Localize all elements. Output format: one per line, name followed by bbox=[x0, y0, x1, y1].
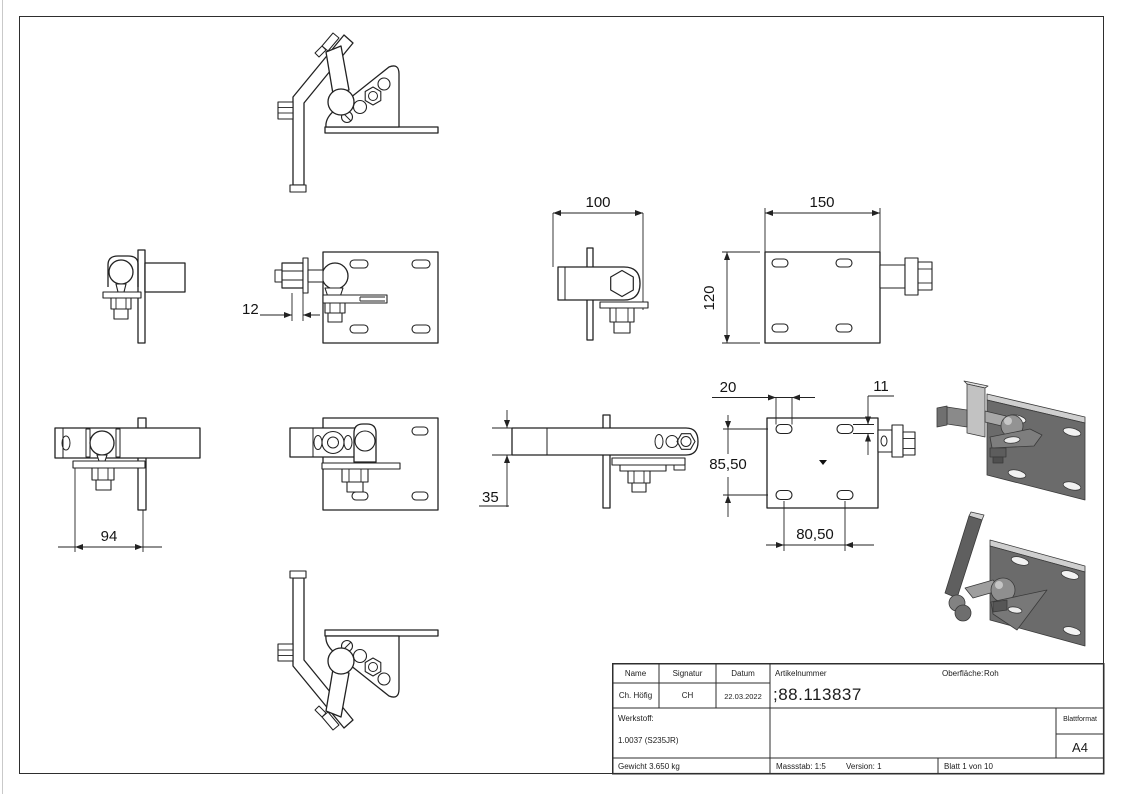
titleblock-material-value: 1.0037 (S235JR) bbox=[618, 736, 678, 745]
view-side-94: 94 bbox=[40, 400, 220, 560]
dim-hole-spacing-vertical: 85,50 bbox=[709, 456, 747, 473]
titleblock-weight: Gewicht 3.650 kg bbox=[618, 762, 680, 771]
view-front-lower bbox=[280, 400, 475, 515]
titleblock-signature-value: CH bbox=[659, 691, 716, 700]
dim-arm-height: 35 bbox=[482, 489, 499, 506]
titleblock-name-value: Ch. Höfig bbox=[612, 691, 659, 700]
titleblock-version: Version: 1 bbox=[846, 762, 882, 771]
view-front-upper: 12 bbox=[240, 235, 445, 350]
dim-plate-offset: 12 bbox=[242, 301, 259, 318]
titleblock-date-label: Datum bbox=[716, 669, 770, 678]
titleblock-format-label: Blattformat bbox=[1056, 716, 1104, 723]
titleblock-surface-label: Oberfläche: bbox=[942, 669, 983, 678]
page-edge bbox=[2, 0, 3, 794]
titleblock-name-label: Name bbox=[612, 669, 659, 678]
dim-top-view-length: 100 bbox=[585, 194, 610, 211]
dim-slot-length: 20 bbox=[720, 379, 737, 396]
dim-plate-width: 150 bbox=[809, 194, 834, 211]
titleblock-article-label: Artikelnummer bbox=[775, 669, 827, 678]
titleblock-signature-label: Signatur bbox=[659, 669, 716, 678]
view-side-35: 35 bbox=[478, 390, 703, 530]
dim-slot-width: 11 bbox=[873, 378, 889, 395]
view-back-plate: 150 120 bbox=[700, 190, 950, 350]
dim-side-view-length: 94 bbox=[101, 528, 118, 545]
view-top: 100 bbox=[535, 190, 700, 340]
dim-hole-spacing-horizontal: 80,50 bbox=[796, 526, 834, 543]
titleblock-scale: Massstab: 1:5 bbox=[776, 762, 826, 771]
titleblock-surface-value: Roh bbox=[984, 669, 999, 678]
view-side-upper bbox=[50, 235, 205, 350]
drawing-sheet: 12 100 bbox=[0, 0, 1123, 794]
view-iso-bottom bbox=[265, 558, 465, 743]
titleblock-date-value: 22.03.2022 bbox=[716, 692, 770, 701]
dim-plate-height: 120 bbox=[701, 285, 718, 310]
titleblock-sheet: Blatt 1 von 10 bbox=[944, 762, 993, 771]
titleblock-format-value: A4 bbox=[1056, 740, 1104, 755]
title-block-grid bbox=[612, 663, 1105, 775]
view-iso-top bbox=[265, 22, 465, 207]
title-block: Name Signatur Datum Artikelnummer Oberfl… bbox=[612, 663, 1104, 774]
titleblock-article-number: ;88.113837 bbox=[773, 685, 862, 705]
titleblock-material-label: Werkstoff: bbox=[618, 714, 654, 723]
view-hole-dimensions: 20 11 85,50 80,50 bbox=[700, 375, 945, 570]
